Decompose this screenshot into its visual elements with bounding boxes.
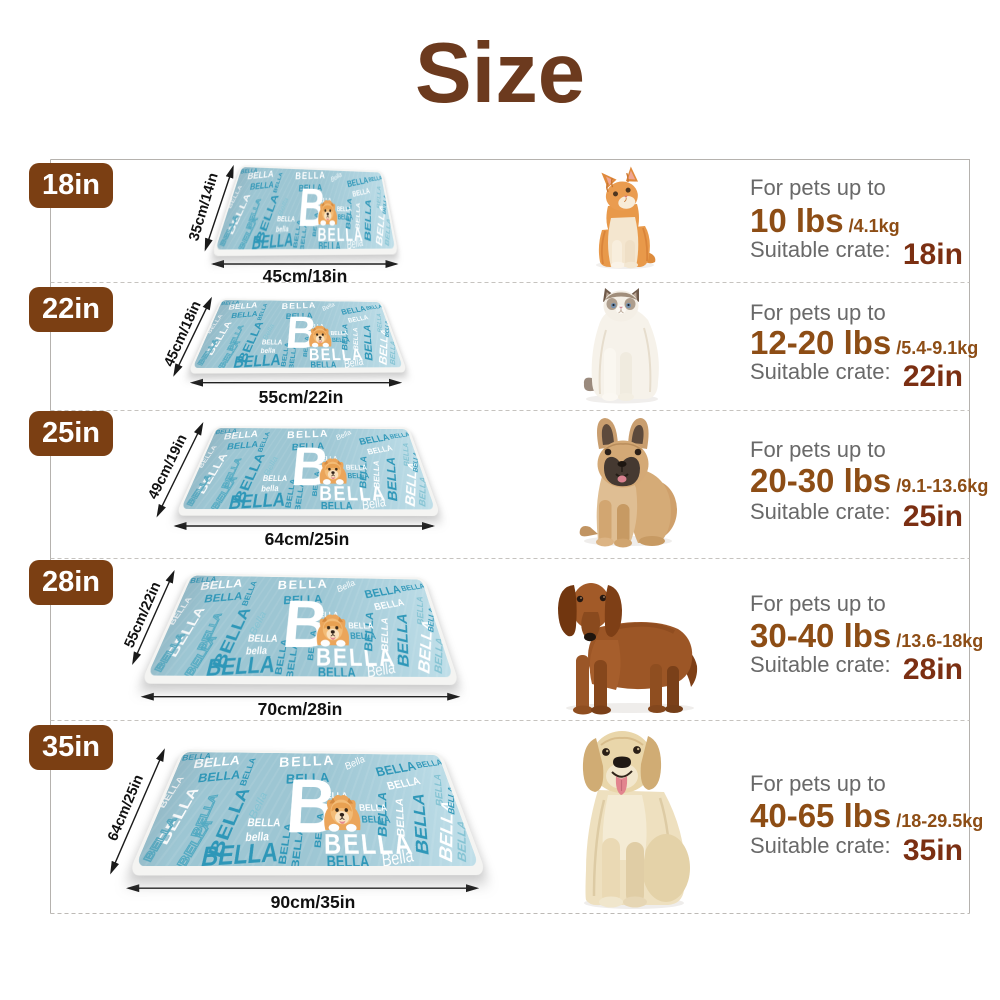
svg-text:64cm/25in: 64cm/25in (105, 773, 147, 844)
svg-text:90cm/35in: 90cm/35in (271, 892, 356, 912)
svg-text:64cm/25in: 64cm/25in (265, 529, 350, 549)
svg-text:70cm/28in: 70cm/28in (258, 699, 343, 719)
svg-text:35cm/14in: 35cm/14in (186, 171, 221, 243)
svg-text:45cm/18in: 45cm/18in (263, 266, 348, 286)
svg-text:55cm/22in: 55cm/22in (259, 387, 344, 407)
svg-text:49cm/19in: 49cm/19in (145, 432, 190, 502)
